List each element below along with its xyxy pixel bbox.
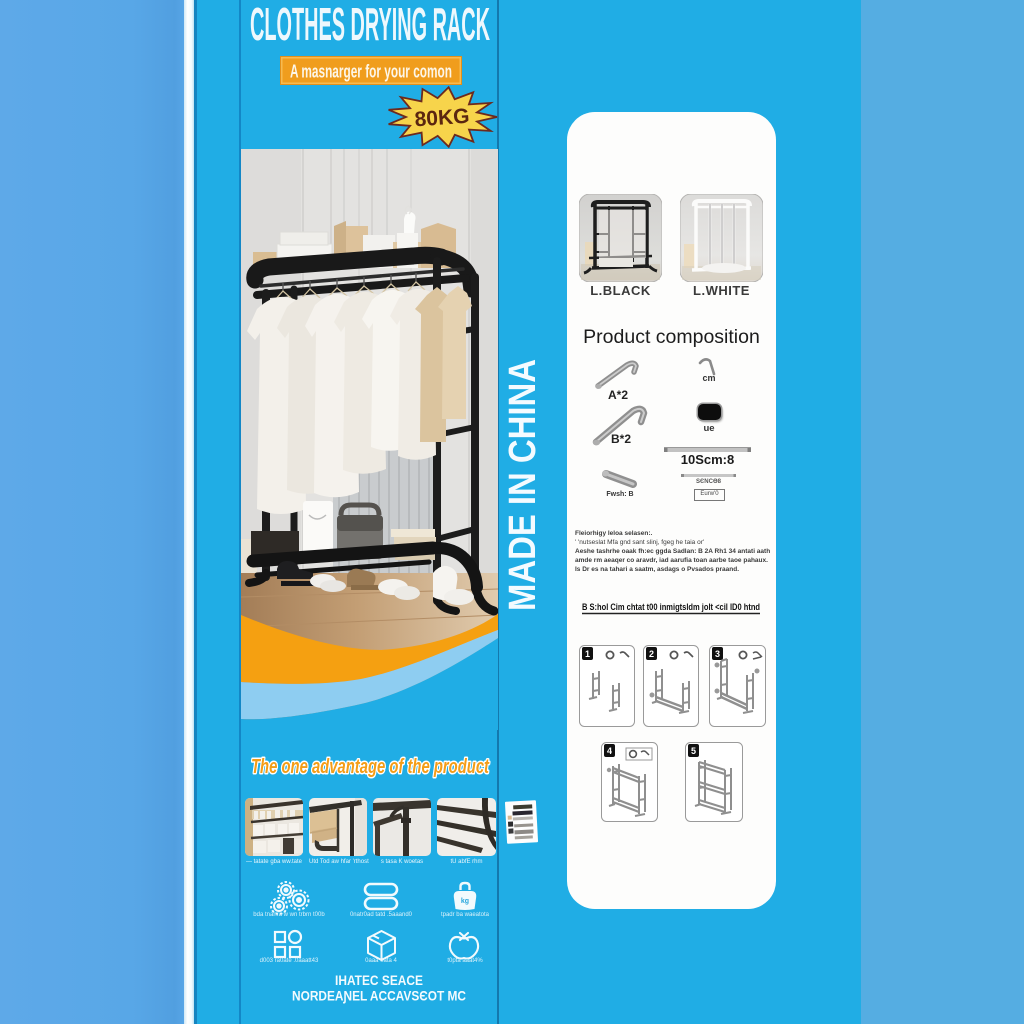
svg-text:80KG: 80KG [414, 105, 470, 132]
svg-text:kg: kg [461, 898, 469, 905]
svg-text:5: 5 [691, 746, 696, 756]
svg-text:CLOTHES DRYING RACK: CLOTHES DRYING RACK [250, 0, 490, 48]
svg-text:1: 1 [585, 649, 590, 659]
svg-text:A masnarger for your comon: A masnarger for your comon [290, 61, 452, 82]
svg-text:The one advantage of the produ: The one advantage of the product [251, 756, 490, 778]
svg-text:3: 3 [715, 649, 720, 659]
svg-text:4: 4 [607, 746, 612, 756]
svg-text:NORDEAƝEL ACCAVSЄOT MC: NORDEAƝEL ACCAVSЄOT MC [292, 989, 466, 1004]
svg-text:MADE IN CHINA: MADE IN CHINA [502, 359, 541, 611]
svg-text:IHATEC SEACE: IHATEC SEACE [335, 973, 423, 988]
svg-text:B S:hol Cim chtat t00 inmigtsl: B S:hol Cim chtat t00 inmigtsldm jolt <c… [582, 602, 760, 613]
svg-text:2: 2 [649, 649, 654, 659]
